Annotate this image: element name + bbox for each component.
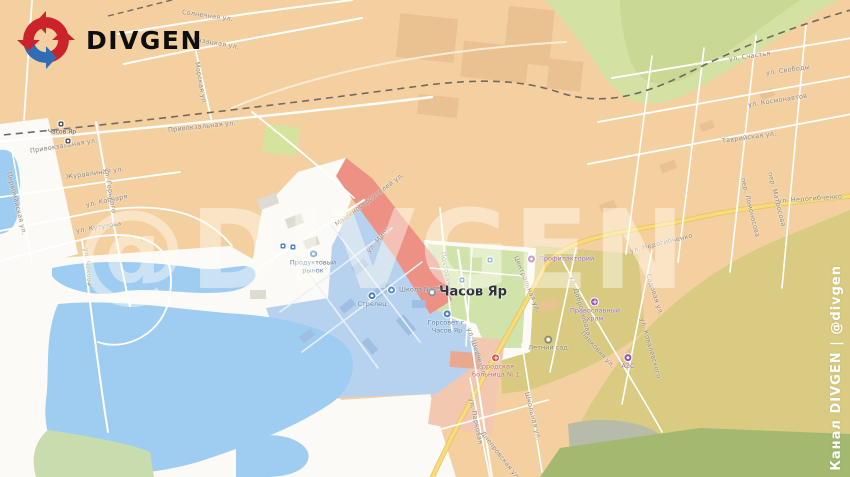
- circle-icon: [387, 286, 396, 295]
- circle-icon: [368, 291, 377, 300]
- street-label: Первомайская ул.: [5, 171, 28, 236]
- bussquare-icon: [280, 243, 287, 250]
- street-label: ул. Чехова: [82, 248, 94, 287]
- city-hospital-text: Городскаябольница № 1: [472, 363, 520, 378]
- bus-stop-1: [280, 243, 287, 250]
- gas-station: АЗС: [621, 353, 634, 371]
- circle-icon: [443, 309, 452, 318]
- square-icon: [58, 121, 65, 128]
- school-15: Школа № 15: [387, 286, 441, 295]
- divgen-pinwheel-icon: [14, 4, 78, 76]
- profilaktoriy: Профилакторий: [527, 255, 594, 264]
- orthodox-church: +Православныйхрам: [570, 297, 620, 322]
- town-label-text: Часов Яр: [439, 284, 507, 299]
- cross-icon: +: [491, 353, 500, 362]
- bus-stop-3: [459, 277, 466, 284]
- street-label: ул. Кутузова: [75, 219, 122, 235]
- street-label: Парковая ул.: [579, 329, 617, 369]
- strelets-store-text: Стрелец: [357, 301, 386, 309]
- gorsovet: Горсовет г.Часов Яр: [428, 309, 467, 334]
- street-label: ул. Космонавтов: [747, 92, 807, 109]
- street-label: пер. Ломоносова: [739, 177, 761, 238]
- street-label: ул. Ковалевского: [638, 317, 663, 379]
- orthodox-church-text: Православныйхрам: [570, 307, 620, 322]
- strelets-store: Стрелец: [357, 291, 386, 309]
- rail-station-label: Часов Яр: [48, 128, 76, 135]
- bussquare-icon: [487, 257, 494, 264]
- letniy-sad-text: Летний сад: [528, 345, 568, 353]
- street-label: ул. Горького: [102, 167, 118, 213]
- street-label: Садовая ул.: [644, 273, 665, 316]
- bus-stop-2: [290, 244, 297, 251]
- city-hospital: +Городскаябольница № 1: [472, 353, 520, 378]
- street-label: ул. Недогибченко: [629, 232, 693, 255]
- rail-station-icon-top: [58, 121, 65, 128]
- cross-icon: +: [590, 297, 599, 306]
- rail-station-label-text: Часов Яр: [48, 128, 76, 135]
- gorsovet-text: Горсовет г.Часов Яр: [428, 319, 467, 334]
- street-label: Журавлиная ул.: [65, 165, 124, 181]
- letniy-sad: Летний сад: [528, 336, 568, 353]
- bussquare-icon: [290, 244, 297, 251]
- divgen-logo-text: DIVGEN: [86, 26, 203, 55]
- school-15-text: Школа № 15: [399, 286, 441, 294]
- street-label: Днепровская ул.: [479, 430, 522, 477]
- channel-caption: Канал DIVGEN | @divgen: [829, 265, 844, 471]
- street-label: Привокзальная ул.: [168, 119, 237, 134]
- circle-icon: [309, 249, 318, 258]
- street-label: ул. Мира: [365, 225, 391, 254]
- divgen-logo: DIVGEN: [14, 4, 203, 76]
- ring-icon: [544, 336, 552, 344]
- gas-station-text: АЗС: [621, 363, 634, 371]
- rail-station-icon-bottom: [65, 138, 72, 145]
- circle-icon: [624, 353, 633, 362]
- square-icon: [65, 138, 72, 145]
- profilaktoriy-text: Профилакторий: [539, 255, 594, 263]
- grocery-market: Продуктовыйрынок: [290, 249, 336, 274]
- street-label: ул. Свободы: [765, 63, 810, 77]
- grocery-market-text: Продуктовыйрынок: [290, 259, 336, 274]
- street-label: Таврийская ул.: [721, 129, 776, 145]
- bussquare-icon: [459, 277, 466, 284]
- bus-stop-4: [487, 257, 494, 264]
- street-label: ул. Счастья: [728, 49, 771, 63]
- street-label: Машиностроителей ул.: [334, 171, 406, 228]
- street-label: Школьная ул.: [523, 391, 543, 441]
- street-label: ул. Недогибченко: [778, 193, 843, 205]
- circle-icon: [527, 255, 536, 264]
- map-screenshot: Солнечная ул.Казацкая ул.Морская ул.Прив…: [0, 0, 850, 477]
